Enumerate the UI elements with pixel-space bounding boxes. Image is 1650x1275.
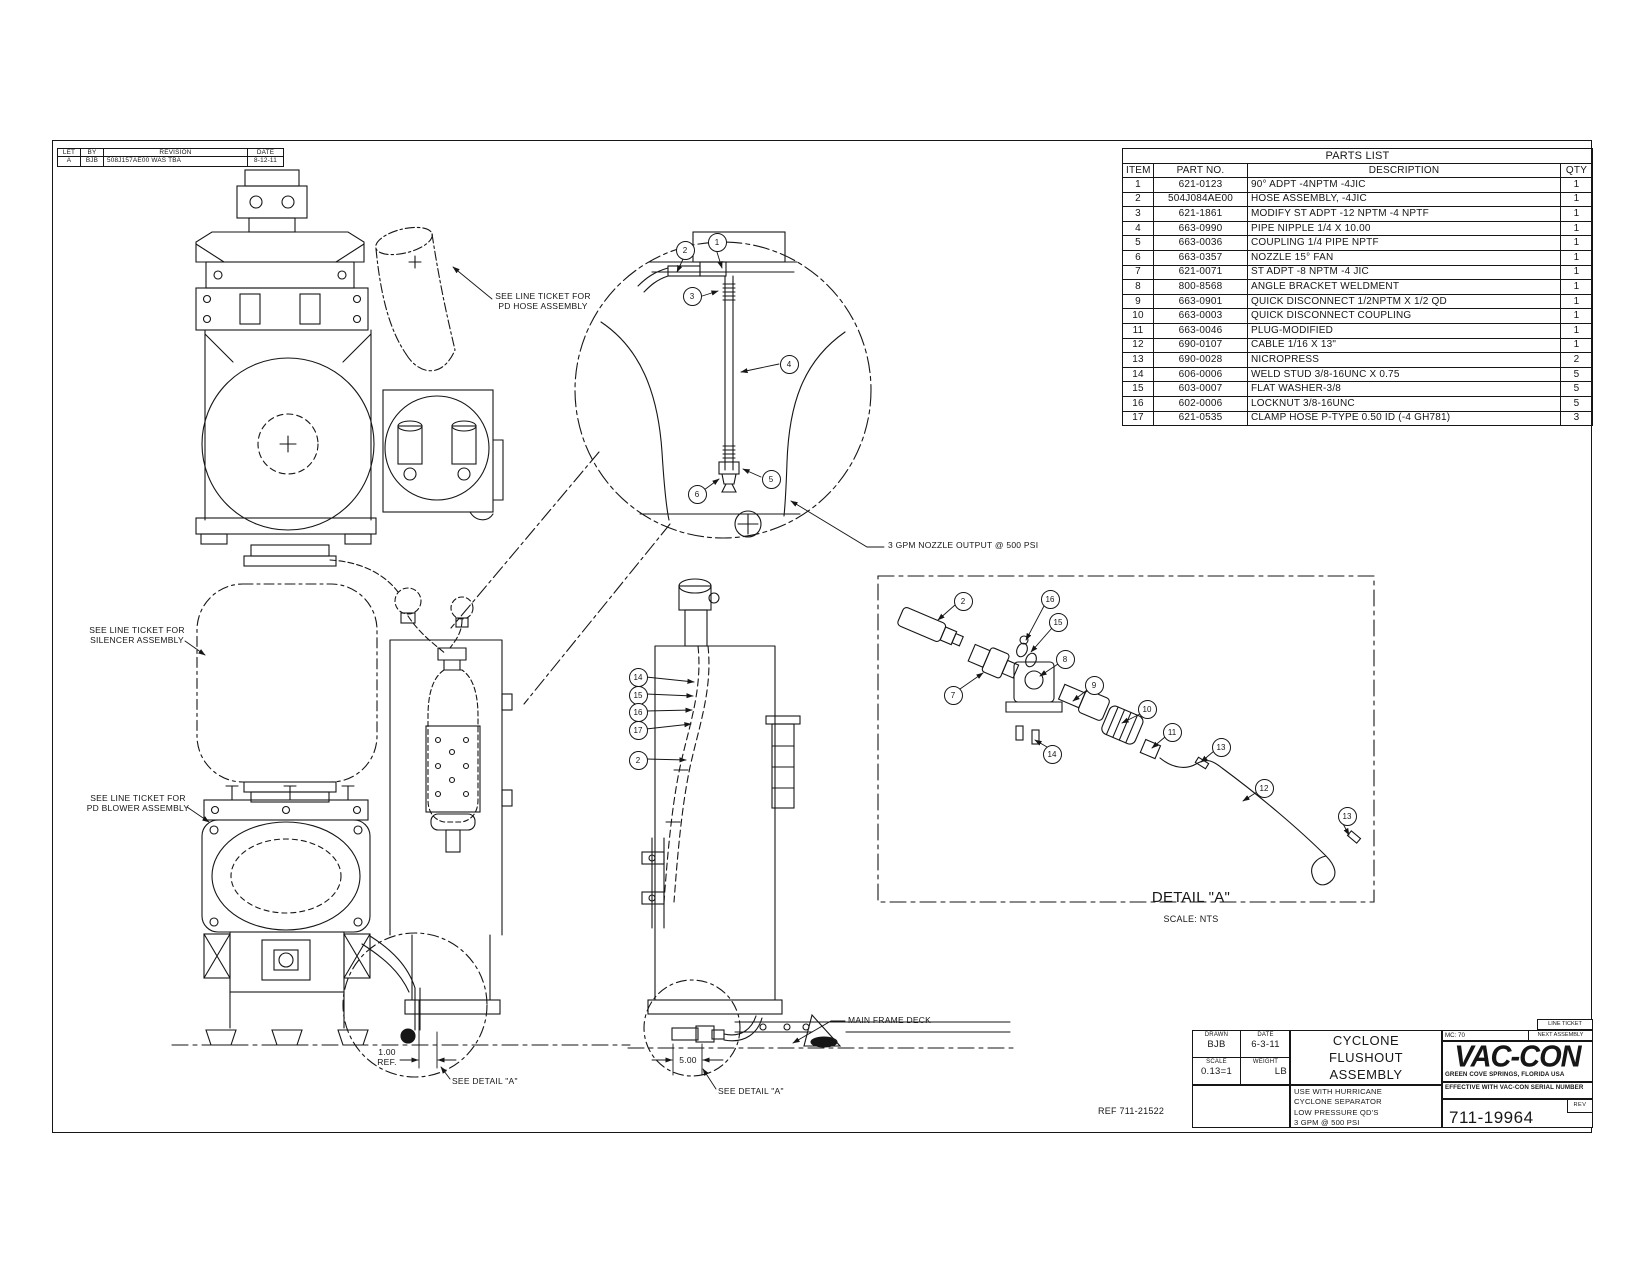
parts-list-title: PARTS LIST: [1123, 149, 1593, 164]
main-frame-deck-label: MAIN FRAME DECK: [848, 1015, 931, 1025]
detail-a-title: DETAIL "A": [1152, 889, 1230, 907]
balloon-item-15: 15: [1049, 613, 1068, 632]
table-row: 11663-0046PLUG-MODIFIED1: [1123, 323, 1593, 338]
title-block-empty-cell: [1192, 1085, 1290, 1128]
rev-header-date: DATE: [248, 149, 284, 157]
parts-header-description: DESCRIPTION: [1248, 164, 1561, 178]
balloon-item-16: 16: [629, 703, 648, 722]
drawing-number-box: 711-19964 REV: [1442, 1099, 1593, 1128]
balloon-item-16: 16: [1041, 590, 1060, 609]
nozzle-output-note: 3 GPM NOZZLE OUTPUT @ 500 PSI: [888, 540, 1038, 550]
balloon-item-8: 8: [1056, 650, 1075, 669]
balloon-item-13: 13: [1338, 807, 1357, 826]
balloon-item-2: 2: [676, 241, 695, 260]
balloon-item-3: 3: [683, 287, 702, 306]
see-detail-a-note-2: SEE DETAIL "A": [718, 1086, 784, 1096]
table-row: 13690-0028NICROPRESS2: [1123, 353, 1593, 368]
balloon-item-6: 6: [688, 485, 707, 504]
ref-number-note: REF 711-21522: [1098, 1106, 1164, 1117]
table-row: 3621-1861MODIFY ST ADPT -12 NPTM -4 NPTF…: [1123, 207, 1593, 222]
table-row: 7621-0071ST ADPT -8 NPTM -4 JIC1: [1123, 265, 1593, 280]
scale-cell: SCALE 0.13=1: [1192, 1057, 1241, 1086]
balloon-item-4: 4: [780, 355, 799, 374]
parts-header-item: ITEM: [1123, 164, 1154, 178]
table-row: 16602-0006LOCKNUT 3/8-16UNC5: [1123, 396, 1593, 411]
rev-label: REV: [1567, 1099, 1593, 1113]
table-row: 8800-8568ANGLE BRACKET WELDMENT1: [1123, 280, 1593, 295]
date-value: 6-3-11: [1241, 1039, 1290, 1050]
balloon-item-1: 1: [708, 233, 727, 252]
balloon-item-14: 14: [629, 668, 648, 687]
table-row: 2504J084AE00HOSE ASSEMBLY, -4JIC1: [1123, 192, 1593, 207]
table-row: 14606-0006WELD STUD 3/8-16UNC X 0.755: [1123, 367, 1593, 382]
revision-table: LET BY REVISION DATE ABJB508J157AE00 WAS…: [57, 148, 284, 167]
table-row: 15603-0007FLAT WASHER-3/85: [1123, 382, 1593, 397]
weight-label: WEIGHT: [1241, 1058, 1290, 1066]
balloon-item-9: 9: [1085, 676, 1104, 695]
parts-header-part-no: PART NO.: [1154, 164, 1248, 178]
vac-con-logo-box: VAC-CON GREEN COVE SPRINGS, FLORIDA USA: [1442, 1041, 1593, 1082]
drawing-sheet: LET BY REVISION DATE ABJB508J157AE00 WAS…: [0, 0, 1650, 1275]
weight-cell: WEIGHT LB: [1240, 1057, 1291, 1086]
table-row: 9663-0901QUICK DISCONNECT 1/2NPTM X 1/2 …: [1123, 294, 1593, 309]
pd-hose-note: SEE LINE TICKET FOR PD HOSE ASSEMBLY: [495, 291, 591, 311]
table-row: 12690-0107CABLE 1/16 X 13"1: [1123, 338, 1593, 353]
drawn-label: DRAWN: [1193, 1031, 1240, 1039]
table-row: 5663-0036COUPLING 1/4 PIPE NPTF1: [1123, 236, 1593, 251]
vac-con-logo: VAC-CON: [1443, 1042, 1592, 1071]
balloon-item-5: 5: [762, 470, 781, 489]
parts-header-qty: QTY: [1561, 164, 1593, 178]
drawn-cell: DRAWN BJB: [1192, 1030, 1241, 1058]
date-label: DATE: [1241, 1031, 1290, 1039]
drawn-value: BJB: [1193, 1039, 1240, 1050]
drawing-number: 711-19964: [1449, 1108, 1534, 1127]
scale-label: SCALE: [1193, 1058, 1240, 1066]
table-row: ABJB508J157AE00 WAS TBA8-12-11: [58, 157, 284, 167]
silencer-note: SEE LINE TICKET FOR SILENCER ASSEMBLY: [89, 625, 185, 645]
balloon-item-17: 17: [629, 721, 648, 740]
balloon-item-11: 11: [1163, 723, 1182, 742]
balloon-item-2: 2: [629, 751, 648, 770]
table-row: 17621-0535CLAMP HOSE P-TYPE 0.50 ID (-4 …: [1123, 411, 1593, 426]
parts-list-table: PARTS LIST ITEM PART NO. DESCRIPTION QTY…: [1122, 148, 1593, 426]
weight-value: LB: [1241, 1066, 1290, 1077]
detail-a-scale: SCALE: NTS: [1163, 914, 1218, 925]
table-row: 6663-0357NOZZLE 15° FAN1: [1123, 250, 1593, 265]
usage-notes: USE WITH HURRICANE CYCLONE SEPARATOR LOW…: [1290, 1085, 1442, 1128]
date-cell: DATE 6-3-11: [1240, 1030, 1291, 1058]
balloon-item-13: 13: [1212, 738, 1231, 757]
rev-header-by: BY: [81, 149, 104, 157]
line-ticket-label: LINE TICKET: [1537, 1019, 1593, 1030]
pd-blower-note: SEE LINE TICKET FOR PD BLOWER ASSEMBLY: [87, 793, 190, 813]
effective-serial-note: EFFECTIVE WITH VAC-CON SERIAL NUMBER: [1442, 1082, 1593, 1099]
balloon-item-15: 15: [629, 686, 648, 705]
balloon-item-12: 12: [1255, 779, 1274, 798]
balloon-item-10: 10: [1138, 700, 1157, 719]
table-row: 4663-0990PIPE NIPPLE 1/4 X 10.001: [1123, 221, 1593, 236]
dim-5-00: 5.00: [679, 1055, 697, 1065]
balloon-item-7: 7: [944, 686, 963, 705]
title-block-info-grid: DRAWN BJB DATE 6-3-11 SCALE 0.13=1 WEIGH…: [1192, 1030, 1290, 1085]
rev-header-let: LET: [58, 149, 81, 157]
balloon-item-14: 14: [1043, 745, 1062, 764]
rev-header-revision: REVISION: [104, 149, 248, 157]
table-row: 10663-0003QUICK DISCONNECT COUPLING1: [1123, 309, 1593, 324]
scale-value: 0.13=1: [1193, 1066, 1240, 1077]
drawing-title: CYCLONE FLUSHOUT ASSEMBLY: [1290, 1030, 1442, 1085]
see-detail-a-note-1: SEE DETAIL "A": [452, 1076, 518, 1086]
table-row: 1621-012390° ADPT -4NPTM -4JIC1: [1123, 178, 1593, 193]
balloon-item-2: 2: [954, 592, 973, 611]
dim-1-00-ref: 1.00 REF.: [377, 1047, 396, 1067]
